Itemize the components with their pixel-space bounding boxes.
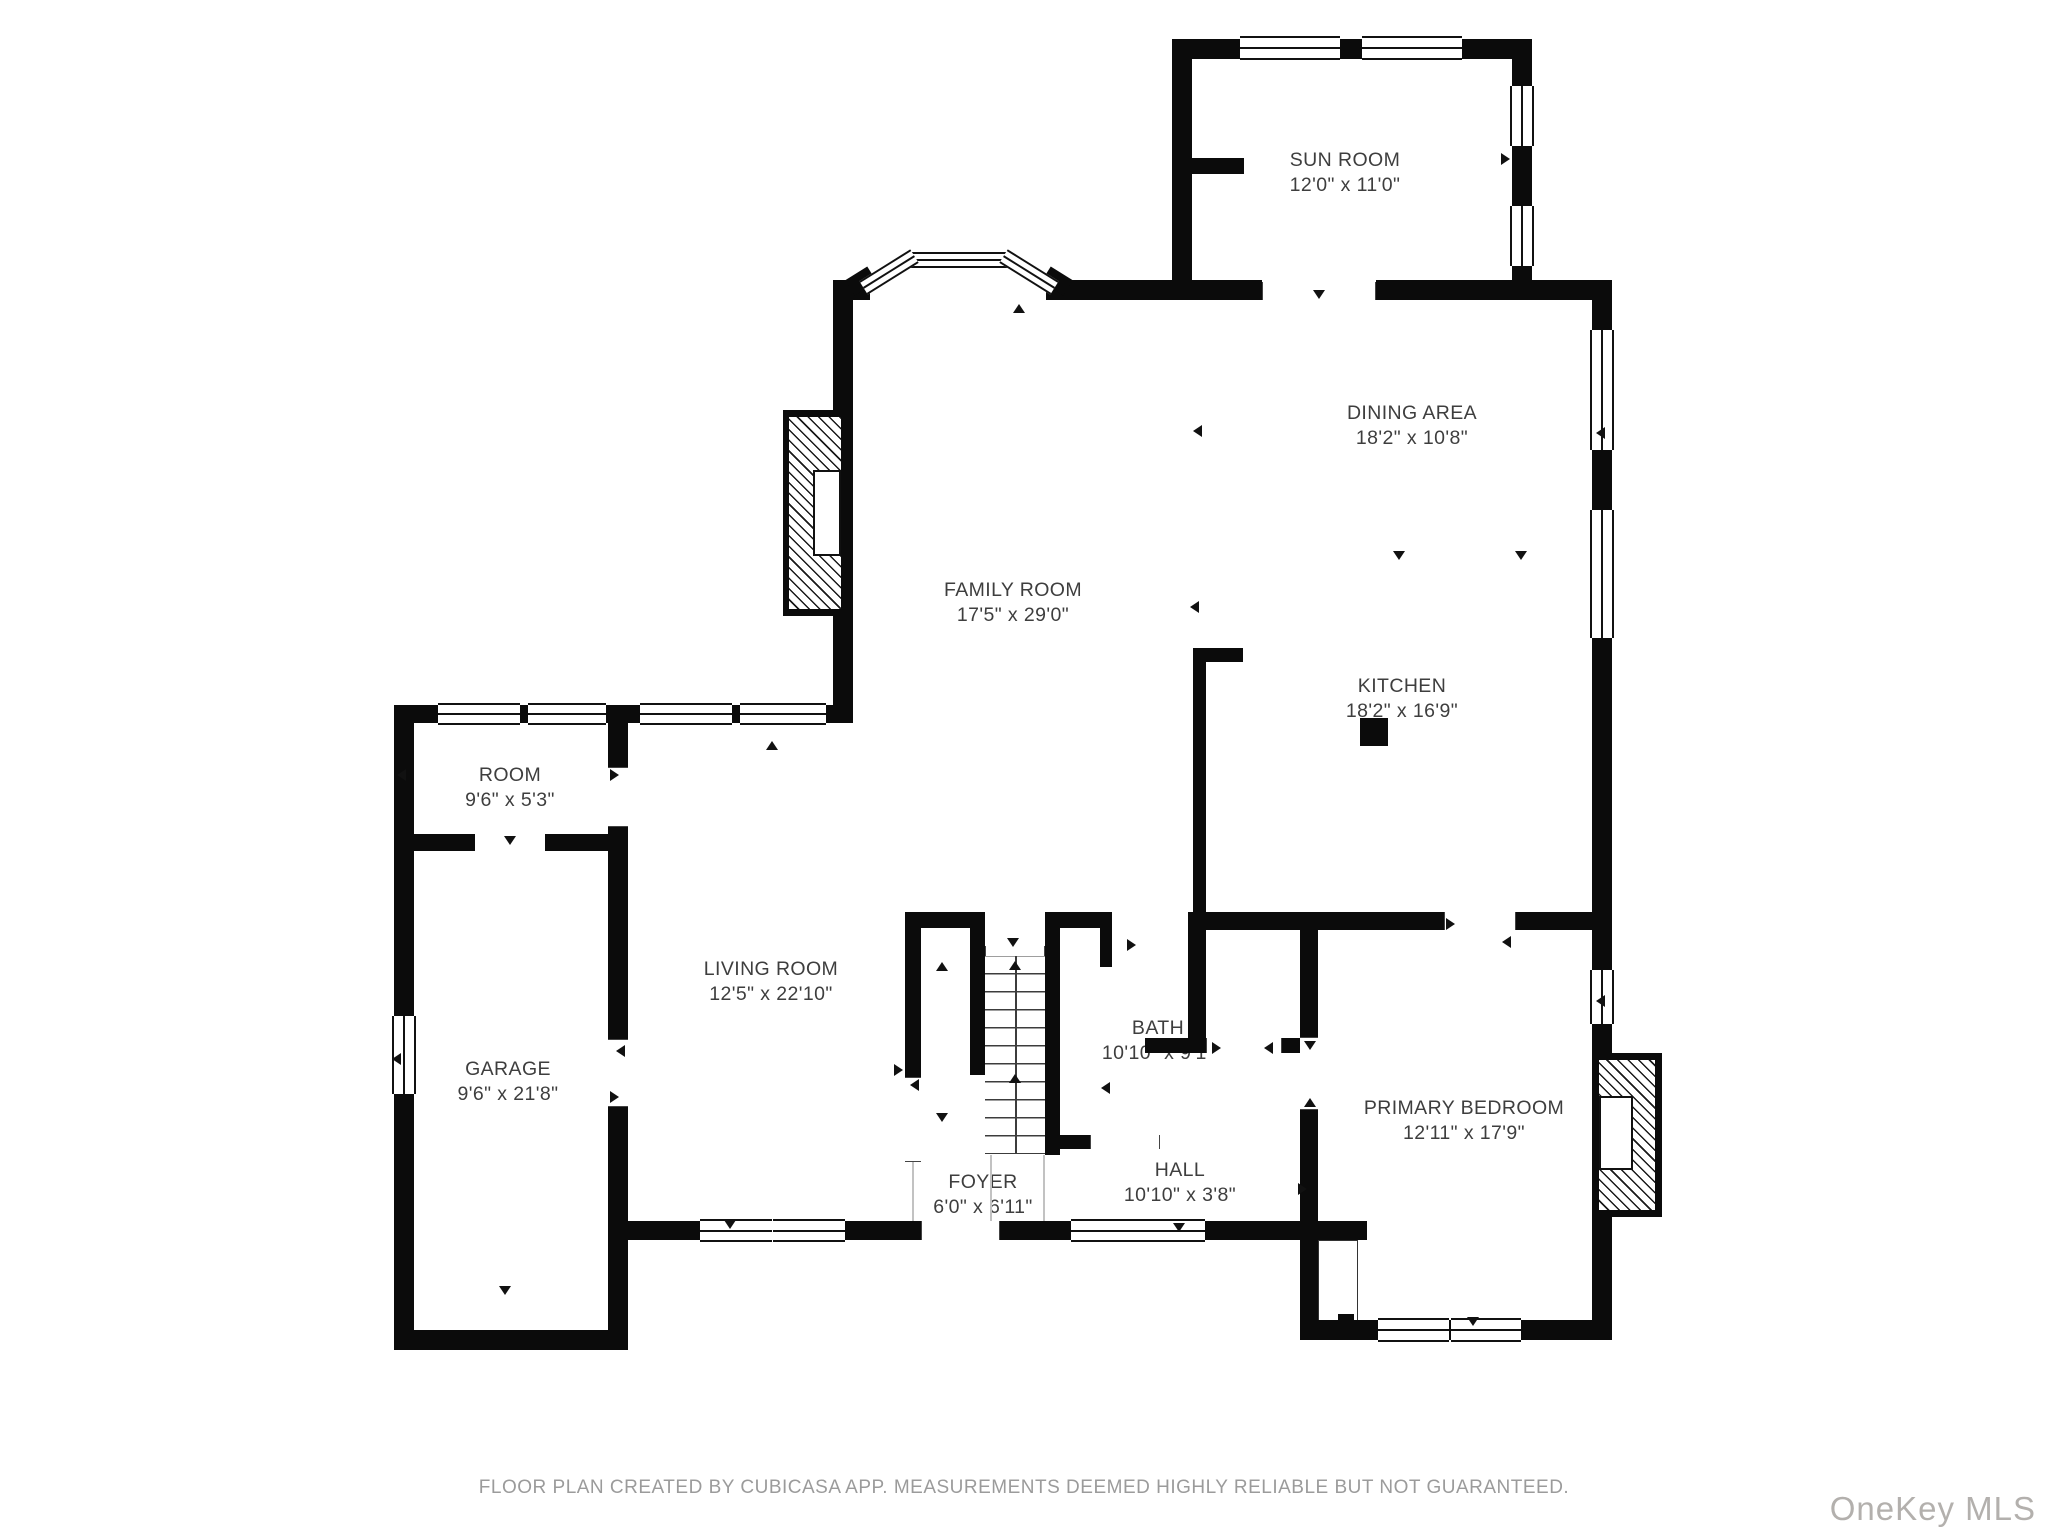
kitchen-pillar	[1360, 718, 1388, 746]
door-swing-marker	[616, 1045, 625, 1057]
door-swing-marker	[1515, 551, 1527, 560]
fireplace-firebox	[813, 470, 841, 556]
door-swing-marker	[1173, 1223, 1185, 1232]
room-label-dining-area: DINING AREA18'2" x 10'8"	[1347, 401, 1477, 451]
window-symbol	[1451, 1318, 1521, 1342]
window-symbol	[740, 703, 826, 725]
wall-segment	[608, 827, 628, 1039]
window-symbol	[438, 703, 520, 725]
door-swing-marker	[504, 836, 516, 845]
wall-segment	[1300, 1110, 1318, 1340]
room-name: KITCHEN	[1346, 674, 1458, 699]
window-symbol	[773, 1219, 845, 1242]
room-dimensions: 12'5" x 22'10"	[704, 982, 838, 1007]
wall-segment	[845, 1221, 921, 1240]
wall-segment	[394, 834, 475, 851]
door-swing-marker	[392, 1053, 401, 1065]
wall-segment	[1045, 912, 1060, 1155]
wall-segment	[1192, 158, 1244, 174]
door-swing-marker	[1304, 1041, 1316, 1050]
room-dimensions: 6'0" x 6'11"	[933, 1195, 1032, 1220]
window-symbol	[1138, 1219, 1205, 1242]
window-symbol	[528, 703, 606, 725]
room-dimensions: 17'5" x 29'0"	[944, 603, 1082, 628]
door-swing-marker	[1212, 1042, 1221, 1054]
door-swing-marker	[1264, 1042, 1273, 1054]
room-dimensions: 12'0" x 11'0"	[1290, 173, 1401, 198]
door-opening	[985, 946, 1045, 956]
door-swing-marker	[610, 1091, 619, 1103]
room-name: HALL	[1124, 1158, 1236, 1183]
room-label-sun-room: SUN ROOM12'0" x 11'0"	[1290, 148, 1401, 198]
window-symbol	[910, 252, 1008, 268]
floor-divider-line	[912, 1162, 914, 1221]
wall-segment	[1172, 39, 1192, 300]
floor-plan: SUN ROOM12'0" x 11'0"DINING AREA18'2" x …	[0, 0, 2048, 1536]
room-name: ROOM	[465, 763, 555, 788]
door-swing-marker	[1193, 425, 1202, 437]
door-swing-marker	[610, 769, 619, 781]
room-name: PRIMARY BEDROOM	[1364, 1096, 1564, 1121]
door-swing-marker	[1101, 1082, 1110, 1094]
door-swing-marker	[1596, 427, 1605, 439]
room-name: DINING AREA	[1347, 401, 1477, 426]
floor-plan-page: SUN ROOM12'0" x 11'0"DINING AREA18'2" x …	[0, 0, 2048, 1536]
wall-segment	[1193, 648, 1243, 662]
room-label-living-room: LIVING ROOM12'5" x 22'10"	[704, 957, 838, 1007]
door-swing-marker	[1127, 939, 1136, 951]
room-name: FOYER	[933, 1170, 1032, 1195]
room-label-primary-bedroom: PRIMARY BEDROOM12'11" x 17'9"	[1364, 1096, 1564, 1146]
room-dimensions: 12'11" x 17'9"	[1364, 1121, 1564, 1146]
door-swing-marker	[936, 962, 948, 971]
door-swing-marker	[1393, 551, 1405, 560]
staircase	[985, 955, 1045, 1154]
wall-segment	[970, 912, 985, 1075]
wall-segment	[905, 912, 921, 1077]
room-label-foyer: FOYER6'0" x 6'11"	[933, 1170, 1032, 1220]
wall-segment	[1376, 280, 1612, 300]
door-swing-marker	[1007, 938, 1019, 947]
window-symbol	[1590, 510, 1614, 638]
door-swing-marker	[1013, 304, 1025, 313]
closet-outline	[1318, 1240, 1358, 1324]
wall-segment	[1100, 912, 1112, 967]
door-opening	[921, 1221, 1000, 1240]
wall-segment	[1192, 280, 1262, 300]
door-swing-marker	[724, 1220, 736, 1229]
wall-segment	[394, 1330, 628, 1350]
room-dimensions: 9'6" x 21'8"	[458, 1082, 559, 1107]
wall-segment	[1172, 39, 1532, 59]
wall-segment	[608, 705, 628, 767]
window-symbol	[1510, 206, 1534, 266]
window-symbol	[640, 703, 732, 725]
door-swing-marker	[1446, 918, 1455, 930]
door-swing-marker	[766, 741, 778, 750]
door-swing-marker	[1298, 1183, 1307, 1195]
door-swing-marker	[1467, 1317, 1479, 1326]
door-swing-marker	[397, 769, 406, 781]
door-swing-marker	[1596, 995, 1605, 1007]
room-label-garage: GARAGE9'6" x 21'8"	[458, 1057, 559, 1107]
room-name: SUN ROOM	[1290, 148, 1401, 173]
room-name: GARAGE	[458, 1057, 559, 1082]
door-swing-marker	[910, 1079, 919, 1091]
room-label-kitchen: KITCHEN18'2" x 16'9"	[1346, 674, 1458, 724]
floor-divider-line	[1043, 1155, 1045, 1221]
wall-segment	[1188, 928, 1206, 1040]
wall-segment	[1516, 912, 1612, 930]
window-symbol	[1378, 1318, 1449, 1342]
wall-segment	[1193, 648, 1206, 918]
wall-segment	[613, 1221, 700, 1240]
door-swing-marker	[936, 1113, 948, 1122]
room-name: FAMILY ROOM	[944, 578, 1082, 603]
wall-segment	[1205, 1221, 1367, 1240]
room-label-hall: HALL10'10" x 3'8"	[1124, 1158, 1236, 1208]
door-swing-marker	[1190, 601, 1199, 613]
door-opening	[1090, 1135, 1160, 1149]
window-symbol	[1071, 1219, 1138, 1242]
door-swing-marker	[499, 1286, 511, 1295]
door-swing-marker	[1501, 153, 1510, 165]
door-swing-marker	[894, 1064, 903, 1076]
room-dimensions: 9'6" x 5'3"	[465, 788, 555, 813]
disclaimer-text: FLOOR PLAN CREATED BY CUBICASA APP. MEAS…	[479, 1477, 1569, 1499]
door-swing-marker	[1502, 936, 1511, 948]
floor-divider-line	[990, 1155, 992, 1221]
window-symbol	[1362, 36, 1462, 60]
room-label-family-room: FAMILY ROOM17'5" x 29'0"	[944, 578, 1082, 628]
door-swing-marker	[1009, 961, 1021, 970]
door-swing-marker	[1009, 1074, 1021, 1083]
window-symbol	[1510, 86, 1534, 146]
door-swing-marker	[1304, 1098, 1316, 1107]
wall-segment	[1052, 1135, 1090, 1149]
room-dimensions: 10'10" x 3'8"	[1124, 1183, 1236, 1208]
window-symbol	[700, 1219, 772, 1242]
wall-segment	[1145, 1038, 1208, 1053]
room-label-room: ROOM9'6" x 5'3"	[465, 763, 555, 813]
wall-segment	[1300, 928, 1318, 1037]
door-swing-marker	[1313, 290, 1325, 299]
room-dimensions: 18'2" x 10'8"	[1347, 426, 1477, 451]
wall-segment	[1000, 1221, 1071, 1240]
room-name: LIVING ROOM	[704, 957, 838, 982]
wall-segment	[1282, 1038, 1300, 1053]
fireplace-firebox	[1599, 1096, 1633, 1170]
window-symbol	[1240, 36, 1340, 60]
onekey-mls-watermark: OneKey MLS	[1830, 1490, 2036, 1528]
wall-segment	[545, 834, 628, 851]
wall-segment	[1338, 1314, 1354, 1326]
